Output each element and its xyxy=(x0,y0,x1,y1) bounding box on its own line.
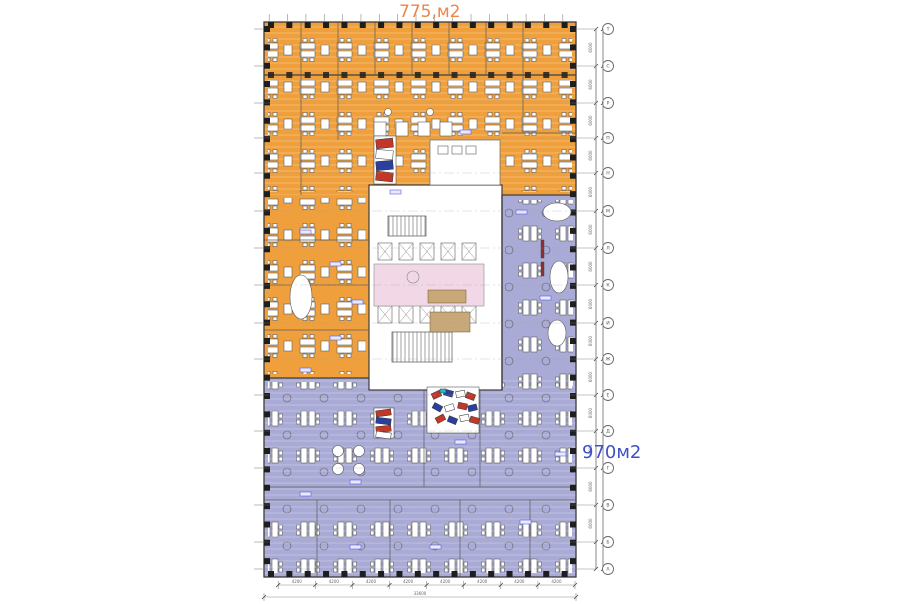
bottom-dimension-text: 4200 xyxy=(440,579,451,584)
bottom-dimension-text: 4200 xyxy=(551,579,562,584)
side-dimension-text: 6000 xyxy=(588,79,593,90)
side-dimension-text: 6000 xyxy=(588,115,593,126)
stairs-bottom xyxy=(392,332,452,362)
grid-bubble-letter: Б xyxy=(606,540,609,546)
grid-bubble-letter: П xyxy=(606,136,609,142)
colored-furniture-cluster xyxy=(374,136,396,184)
bottom-dimension-text: 4200 xyxy=(477,579,488,584)
bottom-dimension-text: 4200 xyxy=(514,579,525,584)
bottom-dimension-text: 4200 xyxy=(292,579,303,584)
texture-overlay xyxy=(264,378,576,577)
side-dimension-text: 6000 xyxy=(588,298,593,309)
side-dimension-text: 6000 xyxy=(588,261,593,272)
colored-furniture-cluster xyxy=(427,387,480,433)
stairs-top xyxy=(388,216,426,236)
grid-bubble-letter: Д xyxy=(606,429,610,435)
bottom-dimension-text: 4200 xyxy=(329,579,340,584)
side-dimension-text: 6000 xyxy=(588,481,593,492)
grid-bubble-letter: Е xyxy=(607,393,610,399)
purple-area-label: 970м2 xyxy=(582,442,641,463)
grid-bubble-letter: И xyxy=(606,321,609,327)
bottom-dimension-text: 4200 xyxy=(366,579,377,584)
side-dimension-text: 6000 xyxy=(588,335,593,346)
side-dimension-text: 6000 xyxy=(588,371,593,382)
grid-bubble-letter: М xyxy=(606,209,610,215)
total-dimension-text: 33600 xyxy=(414,591,427,596)
side-dimension-text: 6000 xyxy=(588,407,593,418)
side-dimension-text: 6000 xyxy=(588,42,593,53)
side-dimension-text: 6000 xyxy=(588,150,593,161)
grid-bubble-letter: В xyxy=(606,503,609,509)
side-dimension-text: 6000 xyxy=(588,518,593,529)
bottom-dimension-text: 4200 xyxy=(403,579,414,584)
colored-furniture-cluster xyxy=(374,408,394,439)
floor-plan-page: ТСРПНМЛКИЖЕДГВБА600060006000600060006000… xyxy=(0,0,900,604)
grid-bubble-letter: С xyxy=(606,64,609,70)
side-dimension-text: 6000 xyxy=(588,224,593,235)
floor-plan-canvas: ТСРПНМЛКИЖЕДГВБА600060006000600060006000… xyxy=(0,0,900,604)
grid-bubble-letter: Л xyxy=(606,246,609,252)
texture-overlay xyxy=(264,22,576,195)
grid-bubble-letter: Н xyxy=(606,171,609,177)
grid-bubble-letter: Т xyxy=(606,27,610,33)
side-dimension-text: 6000 xyxy=(588,186,593,197)
grid-bubble-letter: Р xyxy=(607,101,610,107)
grid-bubble-letter: Г xyxy=(607,466,610,472)
orange-area-label: 775,м2 xyxy=(399,2,461,22)
grid-bubble-letter: Ж xyxy=(606,357,611,363)
